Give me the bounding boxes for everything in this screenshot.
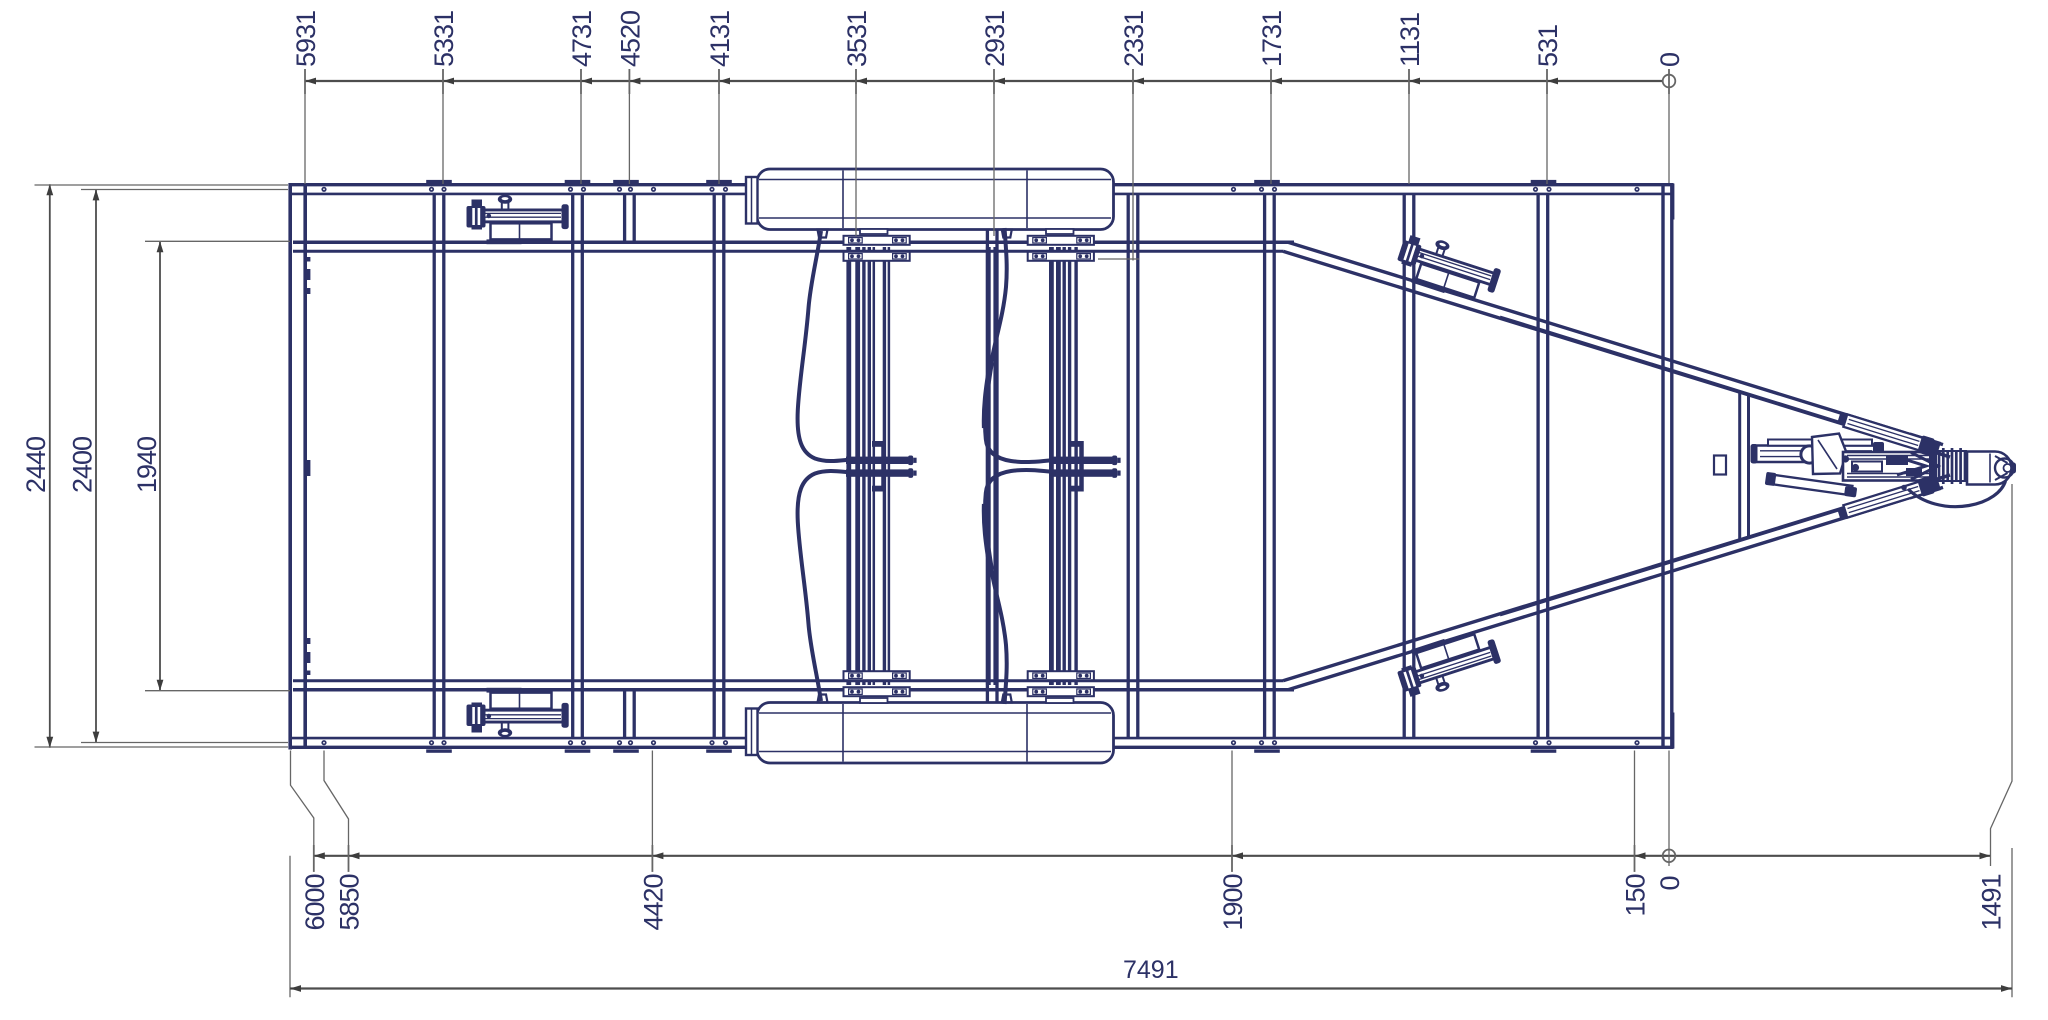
svg-text:1731: 1731 (1257, 11, 1287, 67)
svg-text:7491: 7491 (1123, 956, 1179, 984)
svg-text:1940: 1940 (132, 437, 162, 493)
svg-text:531: 531 (1533, 25, 1563, 67)
svg-text:5331: 5331 (429, 11, 459, 67)
svg-text:1900: 1900 (1218, 874, 1248, 930)
svg-text:150: 150 (1621, 874, 1651, 916)
svg-text:4520: 4520 (615, 11, 645, 67)
svg-text:1491: 1491 (1977, 874, 2007, 930)
svg-text:5931: 5931 (291, 11, 321, 67)
svg-text:2400: 2400 (68, 437, 98, 493)
svg-text:0: 0 (1655, 876, 1685, 890)
svg-text:6000: 6000 (300, 874, 330, 930)
svg-text:4420: 4420 (638, 874, 668, 930)
svg-text:2931: 2931 (980, 11, 1010, 67)
svg-text:0: 0 (1655, 53, 1685, 67)
svg-text:5850: 5850 (335, 874, 365, 930)
svg-text:2440: 2440 (21, 437, 51, 493)
svg-text:4131: 4131 (705, 11, 735, 67)
svg-text:2331: 2331 (1119, 11, 1149, 67)
svg-text:4731: 4731 (567, 11, 597, 67)
svg-text:3531: 3531 (842, 11, 872, 67)
svg-text:1131: 1131 (1395, 13, 1425, 67)
